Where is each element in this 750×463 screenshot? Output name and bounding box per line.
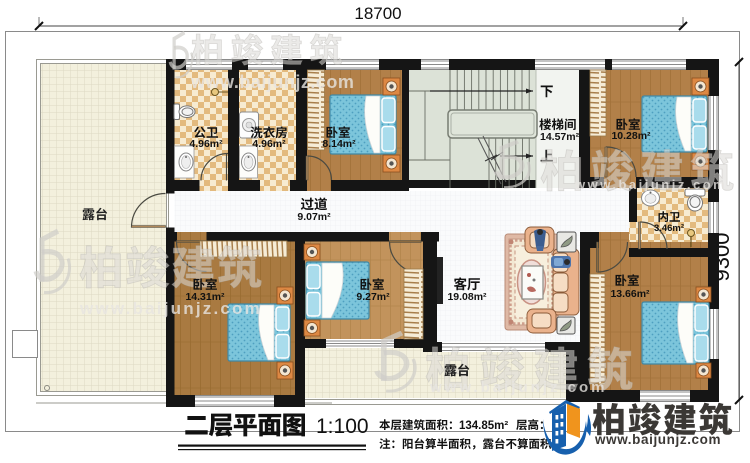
svg-text:8.14m²: 8.14m² [322, 138, 356, 150]
svg-text:18700: 18700 [354, 4, 401, 23]
svg-text:www.baijunjz.com: www.baijunjz.com [574, 177, 727, 192]
svg-text:www.baijunjz.com: www.baijunjz.com [594, 432, 721, 447]
svg-text:www.baijunjz.com: www.baijunjz.com [429, 379, 607, 396]
svg-text:14.31m²: 14.31m² [185, 291, 225, 303]
svg-text:134.85m²: 134.85m² [459, 420, 508, 432]
svg-text:1:100: 1:100 [316, 415, 369, 438]
svg-text:9.27m²: 9.27m² [356, 291, 390, 303]
svg-text:19.08m²: 19.08m² [447, 291, 487, 303]
svg-text:3.46m²: 3.46m² [654, 223, 684, 234]
svg-text:www.baijunjz.com: www.baijunjz.com [79, 299, 262, 318]
svg-text:10.28m²: 10.28m² [611, 130, 651, 142]
svg-text:www.baijunjz.com: www.baijunjz.com [190, 72, 354, 92]
svg-text:4.96m²: 4.96m² [189, 138, 223, 150]
svg-text:9.07m²: 9.07m² [297, 211, 331, 223]
svg-text:4.96m²: 4.96m² [252, 138, 286, 150]
svg-text:13.66m²: 13.66m² [610, 288, 650, 300]
svg-text:14.57m²: 14.57m² [540, 131, 580, 143]
